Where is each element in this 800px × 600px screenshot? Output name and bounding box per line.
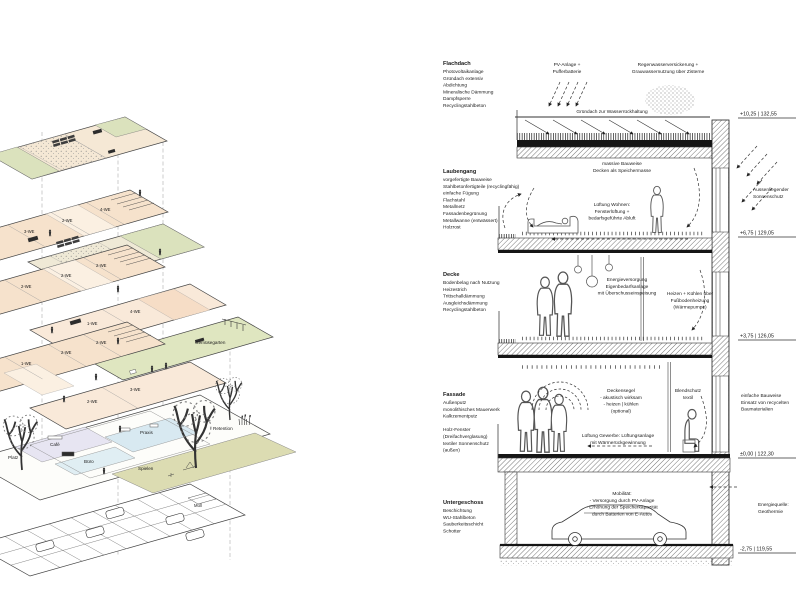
note-sonnenschutz: AussenliegenderSonnenschutz bbox=[753, 187, 789, 200]
unit-label: 2-WE bbox=[61, 273, 72, 278]
section-people bbox=[518, 186, 699, 452]
note-blendschutz: Blendschutztextil bbox=[675, 388, 702, 401]
pv-label: PV-Anlage +Pufferbatterie bbox=[553, 62, 582, 75]
svg-text:Fassade: Fassade bbox=[443, 392, 465, 398]
svg-text:Untergeschoss: Untergeschoss bbox=[443, 500, 483, 506]
wall-windows bbox=[713, 168, 729, 452]
elevation-mark: +3,75 | 126,05 bbox=[738, 334, 796, 341]
diagram-page: 3-WE 2-WE 4-WE 2-WE 2-WE 2-WE 1-WE 4-WE bbox=[0, 0, 800, 600]
basement-wall-left bbox=[505, 472, 517, 545]
axon-plate-roof bbox=[0, 117, 167, 179]
svg-text:Bodenbelag nach NutzungHeizest: Bodenbelag nach NutzungHeizestrichTritts… bbox=[443, 280, 500, 313]
section-diagram: Flachdach PhotovoltaikanlageGründach ext… bbox=[443, 61, 796, 566]
ground-label-retention: Retention bbox=[213, 426, 233, 431]
roof-drain-arrows bbox=[525, 120, 689, 134]
svg-text:PhotovoltaikanlageGründach ext: PhotovoltaikanlageGründach extensivAbdic… bbox=[443, 69, 494, 109]
basement-label-muell: Müll bbox=[194, 503, 202, 508]
gravel-layer bbox=[500, 558, 733, 566]
garden-label: Gemüsegarten bbox=[195, 340, 226, 345]
unit-label: 4-WE bbox=[100, 207, 111, 212]
unit-label: 2-WE bbox=[61, 350, 72, 355]
unit-label: 1-WE bbox=[21, 361, 32, 366]
rain-dots bbox=[645, 85, 695, 115]
note-geothermie: Energiequelle:Geothermie bbox=[758, 502, 789, 515]
svg-text:+10,25 | 132,55: +10,25 | 132,55 bbox=[740, 112, 777, 118]
svg-text:Flachdach: Flachdach bbox=[443, 61, 471, 67]
gruendach-label: Gründach zur Wasserrückhaltung bbox=[576, 109, 648, 115]
sun-arrows bbox=[737, 146, 777, 210]
note-mobilitaet: Mobilität:- Versorgung durch PV-Anlage- … bbox=[586, 491, 658, 517]
annotation-block-decke: Decke Bodenbelag nach NutzungHeizestrich… bbox=[443, 272, 500, 313]
svg-text:Außenputzmonolithisches Mauerw: Außenputzmonolithisches MauerwerkKalkzem… bbox=[443, 400, 500, 454]
architecture-diagram: 3-WE 2-WE 4-WE 2-WE 2-WE 2-WE 1-WE 4-WE bbox=[0, 0, 800, 600]
note-lueftung-gewerbe: Lüftung Gewerbe: Lüftungsanlagemit Wärme… bbox=[582, 433, 655, 446]
svg-text:Laubengang: Laubengang bbox=[443, 169, 477, 175]
seated-person bbox=[683, 410, 699, 452]
ground-label-cafe: Café bbox=[50, 442, 60, 447]
axon-diagram: 3-WE 2-WE 4-WE 2-WE 2-WE 2-WE 1-WE 4-WE bbox=[0, 117, 296, 576]
svg-text:BeschichtungWU-StahlbetonSaube: BeschichtungWU-StahlbetonSauberkeitsschi… bbox=[443, 508, 484, 534]
section-elevations: +10,25 | 132,55 +6,75 | 129,05 +3,75 | 1… bbox=[738, 112, 796, 554]
ground-label-buero: Büro bbox=[84, 459, 94, 464]
unit-label: 2-WE bbox=[96, 340, 107, 345]
ground-label-platz: Platz bbox=[8, 455, 19, 460]
unit-label: 1-WE bbox=[87, 321, 98, 326]
svg-text:+6,75 | 129,05: +6,75 | 129,05 bbox=[740, 231, 774, 237]
ground-label-spielen: Spielen bbox=[138, 466, 154, 471]
unit-label: 2-WE bbox=[96, 263, 107, 268]
unit-label: 2-WE bbox=[21, 284, 32, 289]
elevation-mark: +6,75 | 129,05 bbox=[738, 231, 796, 238]
section-top-labels: PV-Anlage +Pufferbatterie Regenwasserver… bbox=[515, 62, 710, 134]
note-massive: massive BauweiseDecken als Speichermasse bbox=[593, 161, 651, 174]
elevation-mark: -2,75 | 119,55 bbox=[738, 547, 796, 554]
slab-3 bbox=[498, 311, 712, 358]
unit-label: 2-WE bbox=[62, 218, 73, 223]
section-car bbox=[552, 505, 686, 546]
elevation-mark: +10,25 | 132,55 bbox=[738, 112, 796, 119]
svg-text:vorgefertigte BauweiseStahlbet: vorgefertigte BauweiseStahlbetonfertigte… bbox=[443, 177, 520, 231]
unit-label: 4-WE bbox=[130, 309, 141, 314]
annotation-block-flachdach: Flachdach PhotovoltaikanlageGründach ext… bbox=[443, 61, 494, 109]
note-energieversorgung: EnergieversorgungEigenbedarfsanlagemit Ü… bbox=[598, 277, 657, 297]
ground-label-praxis: Praxis bbox=[140, 430, 153, 435]
note-einfache-bauweise: einfache BauweiseEinsatz von recyceltenB… bbox=[741, 393, 789, 413]
foundation-slab bbox=[500, 545, 733, 558]
note-lueftung-wohnen: Lüftung Wohnen:Fensterlüftung +bedarfsge… bbox=[589, 202, 637, 222]
annotation-block-untergeschoss: Untergeschoss BeschichtungWU-StahlbetonS… bbox=[443, 500, 484, 534]
unit-label: 3-WE bbox=[130, 387, 141, 392]
svg-text:-2,75 | 119,55: -2,75 | 119,55 bbox=[740, 547, 772, 553]
annotation-block-fassade: Fassade Außenputzmonolithisches Mauerwer… bbox=[443, 392, 500, 454]
svg-text:±0,00 | 122,30: ±0,00 | 122,30 bbox=[740, 452, 774, 458]
rain-label: Regenwasserversickerung +Grauwassernutzu… bbox=[632, 62, 705, 75]
svg-text:+3,75 | 126,05: +3,75 | 126,05 bbox=[740, 334, 774, 340]
elevation-mark: ±0,00 | 122,30 bbox=[738, 452, 796, 459]
unit-label: 3-WE bbox=[24, 229, 35, 234]
svg-text:Decke: Decke bbox=[443, 272, 459, 278]
note-heizen: Heizen + Kühlen überFußbodenheizung(Wärm… bbox=[667, 291, 714, 311]
unit-label: 2-WE bbox=[87, 399, 98, 404]
note-deckensegel: Deckensegel- akustisch wirksam- heizen |… bbox=[600, 388, 642, 414]
sofa-lying-person bbox=[528, 216, 578, 233]
annotation-block-laubengang: Laubengang vorgefertigte BauweiseStahlbe… bbox=[443, 169, 520, 231]
pv-arrows bbox=[549, 82, 587, 106]
